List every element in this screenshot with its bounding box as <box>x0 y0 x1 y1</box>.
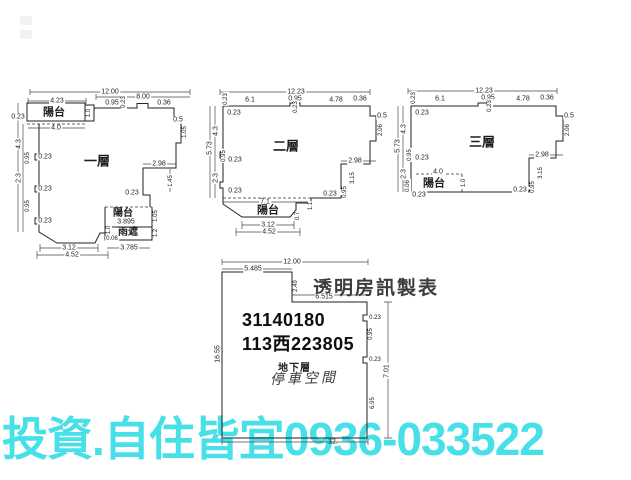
dim-label: 0.95 <box>25 151 31 165</box>
dim-label: 4.23 <box>49 98 65 105</box>
dim-label: 1.1 <box>308 201 314 211</box>
dim-label: 1.0 <box>461 178 467 188</box>
dim-label: 0.23 <box>37 186 53 193</box>
dim-label: 0.23 <box>322 191 338 198</box>
dim-label: 1.0 <box>106 225 112 235</box>
room-label: 陽台 <box>112 209 134 219</box>
room-label: 陽台 <box>42 108 66 119</box>
dim-label: 0.23 <box>227 188 243 195</box>
dim-label: 0.23 <box>124 190 140 197</box>
dim-label: 0.95 <box>25 199 31 213</box>
dim-label: 0.23 <box>37 218 53 225</box>
room-label: 陽台 <box>422 179 446 190</box>
listing-code-1: 31140180 <box>242 310 325 331</box>
floorplan-basement: 透明房訊製表 31140180 113西223805 地下層 停車空間 12.0… <box>218 256 476 456</box>
dim-label: 3.895 <box>116 219 136 226</box>
dim-label: 0.23 <box>414 155 430 162</box>
room-label: 二層 <box>272 140 300 153</box>
dim-label: 0.36 <box>156 100 172 107</box>
dim-label: 6.515 <box>314 294 334 301</box>
dim-label: 0.36 <box>352 96 368 103</box>
dim-label: 5.73 <box>207 140 214 156</box>
dim-label: 1.05 <box>182 125 188 139</box>
dim-label: 4.78 <box>328 97 344 104</box>
dim-label: 0.06 <box>405 179 411 193</box>
dim-label: 12.23 <box>286 89 306 96</box>
dim-label: 0.5 <box>376 113 388 120</box>
dim-label: 4.3 <box>213 125 220 137</box>
listing-code-2: 113西223805 <box>242 330 354 356</box>
dim-label: 0.23 <box>10 114 26 121</box>
dim-label: 5.485 <box>243 266 263 273</box>
dim-label: 0.23 <box>227 157 243 164</box>
dim-label: 2.98 <box>534 152 550 159</box>
floorplan-first-floor: 12.004.238.000.950.230.36陽台1.00.234.00.5… <box>12 86 208 258</box>
dim-label: 0.5 <box>563 113 575 120</box>
dim-label: 2.3 <box>401 168 408 180</box>
scan-smudge <box>20 16 32 25</box>
dim-label: 2.49 <box>293 279 299 293</box>
dim-label: 0.23 <box>414 110 430 117</box>
dim-label: 0.23 <box>411 192 427 199</box>
dim-label: 2.98 <box>151 161 167 168</box>
dim-label: 12. <box>327 439 339 446</box>
room-label: 一層 <box>83 155 111 168</box>
dim-label: 2.98 <box>347 158 363 165</box>
dim-label: 3.785 <box>119 245 139 252</box>
dim-label: 6.1 <box>244 97 256 104</box>
dim-label: 4.78 <box>515 96 531 103</box>
dim-label: 12.00 <box>282 259 302 266</box>
dim-label: 4.0 <box>432 169 444 176</box>
dim-label: 0.95 <box>342 185 348 199</box>
dim-label: 0.36 <box>539 95 555 102</box>
dim-label: 0.23 <box>368 315 382 321</box>
dim-label: 4.52 <box>261 229 277 236</box>
dim-label: 8.00 <box>135 94 151 101</box>
dim-label: 0.23 <box>37 154 53 161</box>
dim-label: 5.73 <box>395 138 402 154</box>
room-label: 陽台 <box>256 206 280 217</box>
dim-label: 0.95 <box>530 180 536 194</box>
dim-label: 0.95 <box>368 327 374 341</box>
dim-label: 6.1 <box>434 96 446 103</box>
floorplan-second-floor: 12.230.236.10.950.234.780.360.234.35.730… <box>208 86 390 238</box>
dim-label: 1.05 <box>153 209 159 223</box>
dim-label: 2.06 <box>378 123 384 137</box>
scanned-floorplan-page: 投資.自住皆宜0936-033522 12.004.238.000.950.23… <box>0 0 631 480</box>
dim-label: 1.45 <box>168 174 174 188</box>
dim-label: 2.06 <box>565 123 571 137</box>
dim-label: 0.23 <box>487 99 493 113</box>
dim-label: 0.95 <box>407 148 413 162</box>
floorplan-third-floor: 12.230.236.10.950.234.780.360.234.35.730… <box>396 86 576 218</box>
dim-label: 0.5 <box>172 117 184 124</box>
dim-label: 4.3 <box>401 123 408 135</box>
dim-label: 3.15 <box>350 171 356 185</box>
dim-label: 0.06 <box>105 236 119 242</box>
dim-label: 0.23 <box>226 110 242 117</box>
dim-label: 0.23 <box>512 187 528 194</box>
dim-label: 7.01 <box>384 363 391 379</box>
dim-label: 1.2 <box>153 228 159 238</box>
building-outline-left <box>35 124 105 243</box>
dim-label: 3.15 <box>538 166 544 180</box>
dim-label: 12.23 <box>474 88 494 95</box>
dim-label: 6.95 <box>370 396 376 410</box>
dim-label: 2.3 <box>16 172 23 184</box>
room-label: 三層 <box>468 136 496 149</box>
dim-label: 0.95 <box>104 100 120 107</box>
dim-label: 0.23 <box>121 95 127 109</box>
dim-label: 4.3 <box>16 138 23 150</box>
dim-label: 12.00 <box>100 89 120 96</box>
dim-label: 4.52 <box>64 252 80 259</box>
dim-label: 0.23 <box>223 92 229 106</box>
dim-label: 1.0 <box>86 108 92 118</box>
room-label: 雨遮 <box>117 228 139 238</box>
dim-label: 0.95 <box>221 149 227 163</box>
dim-label: 0.23 <box>293 100 299 114</box>
dim-label: 2.3 <box>213 172 220 184</box>
dim-label: 16.55 <box>215 344 222 364</box>
dim-label: 3.12 <box>260 222 276 229</box>
scan-smudge <box>20 30 32 39</box>
parking-space-label: 停車空間 <box>270 367 339 389</box>
dim-label: 0.23 <box>368 357 382 363</box>
dim-label: 0.23 <box>411 91 417 105</box>
dim-label: 0.7 <box>295 211 301 221</box>
dim-label: 4.0 <box>50 125 62 132</box>
dim-label: 3.12 <box>61 245 77 252</box>
